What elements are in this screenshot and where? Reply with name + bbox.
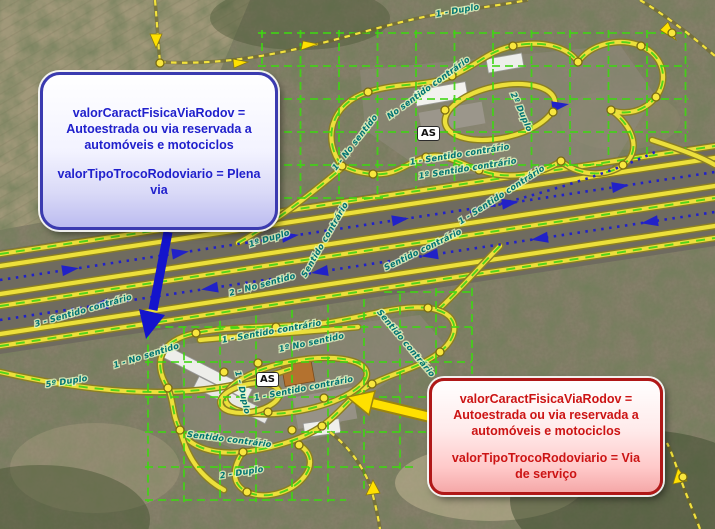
callout-text: valorCaractFisicaViaRodov = Autoestrada … <box>56 105 262 153</box>
service-area-badge: AS <box>417 126 440 141</box>
callout-text: valorCaractFisicaViaRodov = Autoestrada … <box>445 391 647 439</box>
map-view[interactable]: 1 - DuploNo sentido contrário2º Duplo1 -… <box>0 0 715 529</box>
callout-text: valorTipoTrocoRodoviario = Plena via <box>56 166 262 198</box>
callout-via-de-servico: valorCaractFisicaViaRodov = Autoestrada … <box>429 378 663 495</box>
callout-text: valorTipoTrocoRodoviario = Via de serviç… <box>445 450 647 482</box>
callout-plena-via: valorCaractFisicaViaRodov = Autoestrada … <box>40 72 278 230</box>
service-area-badge: AS <box>256 372 279 387</box>
